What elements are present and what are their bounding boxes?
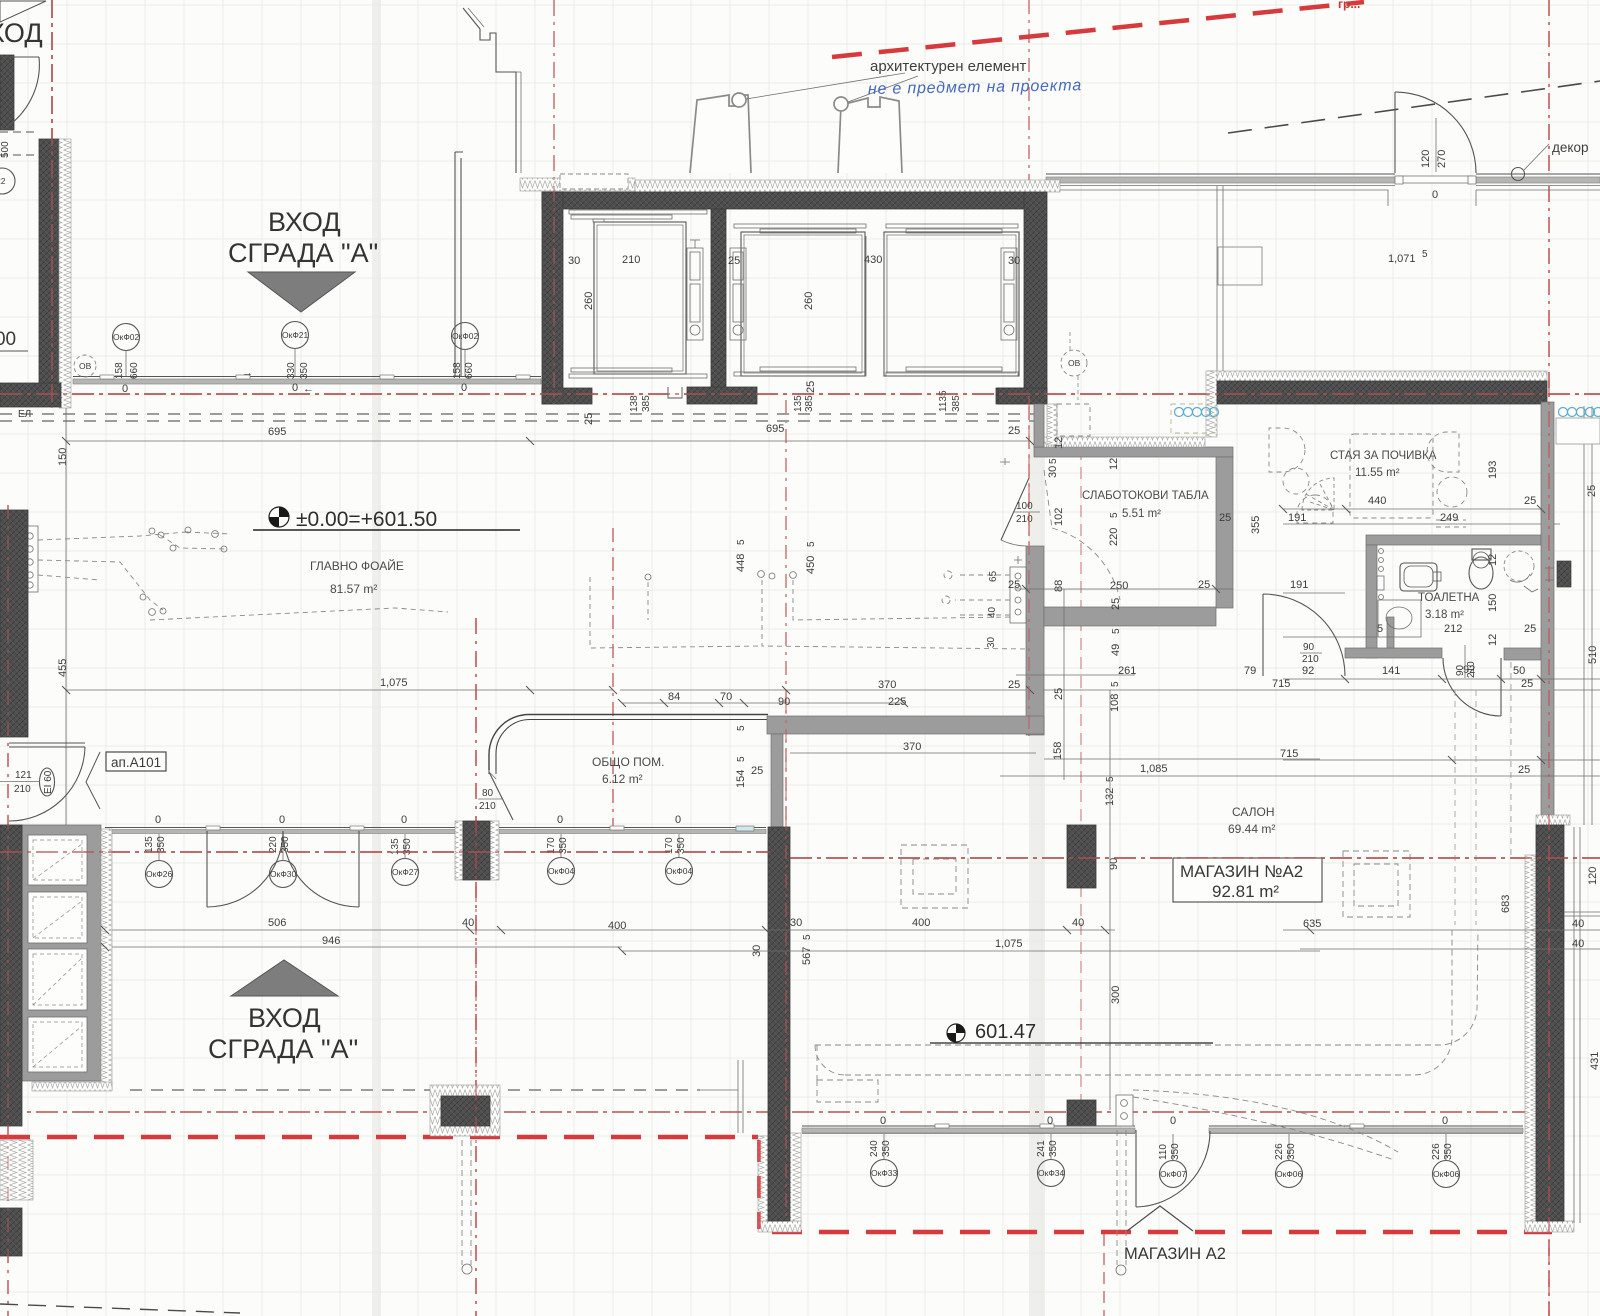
svg-text:158: 158	[1052, 742, 1064, 760]
svg-text:370: 370	[878, 679, 896, 691]
svg-text:455: 455	[57, 659, 69, 677]
svg-text:→: →	[242, 367, 253, 379]
svg-text:270: 270	[1436, 150, 1448, 168]
svg-text:30: 30	[751, 945, 763, 957]
svg-text:138: 138	[629, 395, 640, 412]
svg-text:5: 5	[802, 934, 813, 940]
svg-text:ОкФ06: ОкФ06	[1276, 1169, 1303, 1179]
svg-text:1,075: 1,075	[380, 677, 408, 689]
svg-text:40: 40	[1572, 918, 1584, 930]
svg-text:510: 510	[1587, 646, 1599, 664]
svg-text:400: 400	[608, 920, 626, 932]
svg-text:40: 40	[987, 606, 998, 618]
svg-text:30: 30	[1008, 255, 1020, 267]
svg-text:25: 25	[728, 255, 740, 267]
svg-text:ОВ: ОВ	[1068, 358, 1081, 368]
svg-text:ВХОД: ВХОД	[0, 18, 43, 48]
svg-text:0: 0	[401, 814, 407, 826]
svg-text:660: 660	[464, 362, 475, 379]
svg-text:260: 260	[803, 292, 815, 310]
svg-text:МАГАЗИН №А2: МАГАЗИН №А2	[1180, 862, 1303, 881]
svg-text:350: 350	[156, 836, 167, 853]
svg-text:декор: декор	[1552, 140, 1588, 155]
svg-text:220: 220	[268, 836, 279, 853]
svg-text:141: 141	[1382, 665, 1400, 677]
svg-text:158: 158	[114, 362, 125, 379]
svg-text:241: 241	[1036, 1140, 1047, 1157]
svg-text:25: 25	[1521, 678, 1533, 690]
svg-text:5: 5	[1111, 628, 1122, 634]
svg-text:ОкФ34: ОкФ34	[1038, 1168, 1065, 1178]
svg-text:135: 135	[793, 395, 804, 412]
svg-text:0: 0	[461, 382, 467, 394]
svg-text:240: 240	[869, 1140, 880, 1157]
svg-text:90: 90	[1303, 642, 1315, 653]
svg-text:715: 715	[1280, 748, 1298, 760]
svg-text:121: 121	[15, 770, 32, 781]
svg-text:ВХОД: ВХОД	[268, 207, 341, 237]
svg-text:226: 226	[1431, 1143, 1442, 1160]
svg-text:300: 300	[1110, 986, 1122, 1004]
svg-text:135: 135	[144, 836, 155, 853]
svg-text:СГРАДА "А": СГРАДА "А"	[228, 238, 378, 268]
svg-text:50: 50	[1513, 665, 1525, 677]
svg-text:683: 683	[1500, 895, 1512, 913]
svg-text:22: 22	[0, 176, 6, 186]
svg-text:СЛАБОТОКОВИ ТАБЛА: СЛАБОТОКОВИ ТАБЛА	[1082, 490, 1209, 502]
svg-text:5: 5	[1422, 249, 1428, 260]
svg-text:350: 350	[1048, 1140, 1059, 1157]
svg-text:СГРАДА "А": СГРАДА "А"	[208, 1034, 358, 1064]
svg-text:40: 40	[462, 917, 474, 929]
svg-text:12: 12	[1487, 554, 1499, 566]
svg-text:12: 12	[1108, 458, 1120, 470]
svg-text:601.47: 601.47	[975, 1021, 1036, 1043]
svg-text:249: 249	[1440, 512, 1458, 524]
svg-text:5: 5	[806, 541, 817, 547]
svg-text:154: 154	[735, 770, 747, 788]
svg-text:601.00: 601.00	[0, 329, 16, 350]
svg-text:158: 158	[452, 362, 463, 379]
svg-text:226: 226	[1274, 1143, 1285, 1160]
svg-text:40: 40	[1072, 917, 1084, 929]
svg-text:САЛОН: САЛОН	[1232, 805, 1275, 819]
svg-text:0: 0	[1442, 1115, 1448, 1127]
svg-text:ОкФ30: ОкФ30	[270, 869, 297, 879]
svg-text:архитектурен елемент: архитектурен елемент	[870, 58, 1027, 75]
svg-text:385: 385	[804, 395, 815, 412]
svg-text:0: 0	[675, 814, 681, 826]
svg-text:ЕЛ: ЕЛ	[18, 409, 31, 420]
svg-text:ВХОД: ВХОД	[248, 1003, 321, 1033]
svg-text:92.81 m²: 92.81 m²	[1212, 882, 1279, 901]
svg-text:350: 350	[881, 1140, 892, 1157]
svg-text:946: 946	[322, 935, 340, 947]
svg-text:0: 0	[155, 814, 161, 826]
svg-text:12: 12	[1053, 437, 1065, 449]
svg-text:350: 350	[1443, 1143, 1454, 1160]
svg-text:25: 25	[1008, 425, 1020, 437]
svg-text:0: 0	[292, 382, 298, 394]
svg-text:660: 660	[129, 362, 140, 379]
svg-text:0: 0	[279, 814, 285, 826]
svg-text:431: 431	[1589, 1052, 1600, 1070]
svg-text:5: 5	[1048, 458, 1059, 464]
svg-text:100: 100	[1016, 501, 1033, 512]
svg-text:25: 25	[1518, 764, 1530, 776]
svg-text:5: 5	[1105, 776, 1116, 782]
svg-text:25: 25	[1524, 495, 1536, 507]
svg-text:ОкФ02: ОкФ02	[113, 332, 140, 342]
svg-text:385: 385	[641, 395, 652, 412]
svg-text:0: 0	[1432, 189, 1438, 201]
svg-text:212: 212	[1444, 623, 1462, 635]
svg-text:ОкФ06: ОкФ06	[1433, 1169, 1460, 1179]
svg-text:695: 695	[268, 426, 286, 438]
svg-text:84: 84	[668, 691, 680, 703]
svg-text:11.55 m²: 11.55 m²	[1355, 467, 1400, 479]
svg-text:400: 400	[912, 917, 930, 929]
svg-text:108: 108	[1109, 694, 1121, 712]
svg-text:635: 635	[1303, 918, 1321, 930]
svg-text:30: 30	[1047, 466, 1059, 478]
svg-text:5: 5	[1109, 512, 1120, 518]
svg-text:102: 102	[1053, 508, 1065, 526]
svg-text:450: 450	[805, 556, 817, 574]
svg-text:ТОАЛЕТНА: ТОАЛЕТНА	[1418, 592, 1480, 604]
svg-text:МАГАЗИН А2: МАГАЗИН А2	[1124, 1245, 1226, 1263]
svg-text:±0.00=+601.50: ±0.00=+601.50	[296, 508, 437, 531]
svg-text:25: 25	[1110, 598, 1122, 610]
svg-text:25: 25	[1008, 679, 1020, 691]
svg-text:210: 210	[479, 801, 496, 812]
svg-text:120: 120	[1587, 867, 1599, 885]
svg-text:120: 120	[1420, 150, 1432, 168]
svg-text:25: 25	[583, 413, 595, 425]
svg-text:0: 0	[557, 814, 563, 826]
svg-text:567: 567	[801, 947, 813, 965]
svg-text:25: 25	[805, 381, 817, 393]
svg-text:150: 150	[1487, 594, 1499, 612]
svg-text:СТАЯ ЗА ПОЧИВКА: СТАЯ ЗА ПОЧИВКА	[1330, 450, 1437, 462]
svg-text:355: 355	[1250, 516, 1262, 534]
svg-text:5: 5	[1377, 623, 1383, 635]
svg-text:210: 210	[622, 254, 640, 266]
svg-text:ап.А101: ап.А101	[111, 755, 161, 770]
svg-text:0: 0	[1047, 1115, 1053, 1127]
svg-text:715: 715	[1272, 678, 1290, 690]
svg-text:30: 30	[986, 636, 997, 648]
svg-text:5.51 m²: 5.51 m²	[1122, 508, 1161, 520]
svg-text:0: 0	[1170, 1115, 1176, 1127]
svg-text:370: 370	[903, 741, 921, 753]
svg-text:ОкФ04: ОкФ04	[548, 866, 575, 876]
svg-text:90: 90	[1455, 664, 1466, 676]
svg-text:193: 193	[1487, 461, 1499, 479]
svg-text:30: 30	[790, 917, 802, 929]
svg-text:гр...: гр...	[1338, 0, 1360, 11]
svg-text:191: 191	[1288, 512, 1306, 524]
svg-text:695: 695	[766, 423, 784, 435]
svg-text:1,071: 1,071	[1388, 253, 1416, 265]
svg-text:ОкФ04: ОкФ04	[666, 866, 693, 876]
svg-text:210: 210	[14, 784, 31, 795]
svg-text:350: 350	[1286, 1143, 1297, 1160]
svg-text:210: 210	[1466, 661, 1477, 678]
svg-text:90: 90	[778, 696, 790, 708]
svg-text:EI 60: EI 60	[43, 770, 54, 794]
svg-text:25: 25	[751, 765, 763, 777]
svg-text:25: 25	[1053, 688, 1065, 700]
svg-text:1,085: 1,085	[1140, 763, 1168, 775]
svg-text:150: 150	[57, 448, 69, 466]
svg-text:81.57 m²: 81.57 m²	[330, 582, 377, 596]
svg-text:ОВ: ОВ	[79, 361, 92, 371]
svg-text:30: 30	[568, 255, 580, 267]
svg-text:5: 5	[736, 539, 747, 545]
svg-text:0: 0	[880, 1115, 886, 1127]
svg-text:430: 430	[864, 254, 882, 266]
svg-text:330: 330	[286, 362, 297, 379]
svg-text:92: 92	[1302, 665, 1314, 677]
svg-text:ОкФ33: ОкФ33	[871, 1168, 898, 1178]
svg-text:25: 25	[1524, 623, 1536, 635]
svg-text:40: 40	[1572, 938, 1584, 950]
svg-text:6.12 m²: 6.12 m²	[602, 772, 643, 786]
svg-text:350: 350	[280, 836, 291, 853]
svg-text:440: 440	[1368, 495, 1386, 507]
svg-text:ОкФ07: ОкФ07	[1160, 1169, 1187, 1179]
svg-text:448: 448	[735, 554, 747, 572]
svg-text:3.18 m²: 3.18 m²	[1425, 609, 1464, 621]
svg-text:210: 210	[1016, 514, 1033, 525]
svg-text:250: 250	[1110, 580, 1128, 592]
svg-text:385: 385	[951, 395, 962, 412]
svg-text:ОкФ26: ОкФ26	[146, 869, 173, 879]
svg-text:191: 191	[1290, 579, 1308, 591]
svg-text:350: 350	[1170, 1143, 1181, 1160]
svg-text:12: 12	[1487, 634, 1499, 646]
svg-text:500: 500	[0, 141, 11, 158]
svg-text:ОкФ27: ОкФ27	[392, 867, 419, 877]
svg-text:5: 5	[736, 756, 747, 762]
svg-text:260: 260	[583, 292, 595, 310]
svg-text:220: 220	[1108, 528, 1120, 546]
svg-text:49: 49	[1110, 644, 1122, 656]
svg-text:5: 5	[1110, 681, 1121, 687]
svg-text:ГЛАВНО ФОАЙЕ: ГЛАВНО ФОАЙЕ	[310, 558, 404, 573]
svg-text:88: 88	[1053, 580, 1065, 592]
svg-text:350: 350	[299, 362, 310, 379]
svg-text:5: 5	[736, 725, 747, 731]
svg-text:210: 210	[1302, 654, 1319, 665]
svg-text:ОкФ02: ОкФ02	[452, 331, 479, 341]
svg-text:1,075: 1,075	[995, 938, 1023, 950]
svg-text:ОкФ21: ОкФ21	[282, 330, 309, 340]
svg-text:110: 110	[1158, 1144, 1169, 1160]
svg-text:25: 25	[1219, 512, 1231, 524]
svg-text:506: 506	[268, 917, 286, 929]
svg-text:80: 80	[482, 788, 494, 799]
svg-text:79: 79	[1244, 665, 1256, 677]
svg-text:69.44 m²: 69.44 m²	[1228, 822, 1275, 836]
svg-text:65: 65	[988, 570, 999, 582]
svg-text:ОБЩО ПОМ.: ОБЩО ПОМ.	[592, 755, 664, 769]
svg-text:70: 70	[720, 691, 732, 703]
